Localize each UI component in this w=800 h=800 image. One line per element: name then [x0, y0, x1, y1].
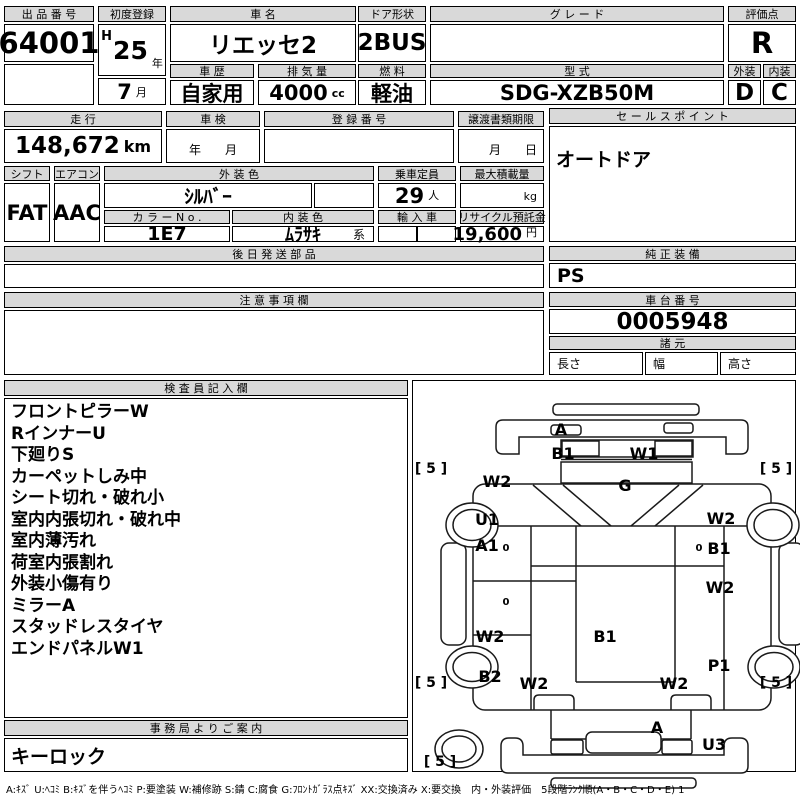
color-no-value: 1E7 [104, 226, 230, 242]
later-parts-label: 後 日 発 送 部 品 [4, 246, 544, 262]
genuine-equipment-label: 純 正 装 備 [549, 246, 796, 261]
specs-label: 諸 元 [549, 336, 796, 350]
interior-color-name: ﾑﾗｻｷ [285, 221, 321, 247]
damage-code-label: A1 [475, 538, 499, 554]
exterior-label: 外装 [728, 64, 761, 78]
damage-code-label: U3 [702, 737, 726, 753]
displacement-value: 4000 cc [258, 80, 356, 105]
score-label: 評価点 [728, 6, 796, 22]
first-registration-year: H 25 年 [98, 24, 166, 76]
exterior-color-label: 外 装 色 [104, 166, 374, 181]
damage-code-label: B1 [707, 541, 730, 557]
inspector-note-line: カーペットしみ中 [11, 467, 401, 489]
auction-number-label: 出 品 番 号 [4, 6, 94, 22]
mileage-value: 148,672 km [4, 129, 162, 163]
capacity-number: 29 [395, 184, 424, 208]
model-code-label: 型 式 [430, 64, 724, 78]
notes-label: 注 意 事 項 欄 [4, 292, 544, 308]
shift-value: FAT [4, 183, 50, 242]
spec-height: 高さ [720, 352, 796, 375]
era-letter: H [101, 29, 112, 44]
spec-length: 長さ [549, 352, 643, 375]
import-car-cell-1 [378, 226, 417, 242]
max-load-value: kg [460, 183, 544, 208]
office-notice-label: 事 務 局 よ り ご 案 内 [4, 720, 408, 736]
inspector-notes-label: 検 査 員 記 入 欄 [4, 380, 408, 396]
fuel-label: 燃 料 [358, 64, 426, 78]
first-registration-month: 7 月 [98, 78, 166, 105]
damage-code-label: B1 [593, 629, 616, 645]
damage-code-label: 0 [696, 544, 703, 554]
inspector-note-line: シート切れ・破れ小 [11, 488, 401, 510]
inspection-label: 車 検 [166, 111, 260, 127]
interior-label: 内装 [763, 64, 796, 78]
transfer-docs-label: 譲渡書類期限 [458, 111, 544, 127]
damage-code-label: B2 [478, 669, 501, 685]
grade-value [430, 24, 724, 62]
damage-code-label: [ 5 ] [760, 462, 792, 476]
recycle-number: 19,600 [453, 224, 522, 245]
first-registration-month-value: 7 [117, 80, 132, 104]
damage-code-label: W2 [660, 676, 689, 692]
damage-code-label: A [651, 720, 663, 736]
displacement-unit: cc [332, 87, 345, 100]
auction-number-value: 64001 [4, 24, 94, 62]
capacity-unit: 人 [428, 187, 439, 203]
inspector-note-line: フロントピラーW [11, 402, 401, 424]
capacity-value: 29 人 [378, 183, 456, 208]
auction-sheet: 出 品 番 号 64001 初度登録 H 25 年 7 月 車 名 リエッセ2 … [0, 0, 800, 800]
first-registration-year-value: 25 [113, 36, 148, 65]
interior-score: C [763, 80, 796, 105]
inspector-note-line: RインナーU [11, 424, 401, 446]
month-unit: 月 [136, 84, 147, 100]
inspector-notes-body: フロントピラーWRインナーU下廻りSカーペットしみ中シート切れ・破れ小室内内張切… [4, 398, 408, 718]
damage-code-label: G [618, 478, 631, 494]
vehicle-damage-diagram: AB1W1[ 5 ][ 5 ]W2GU1W2A100B10W2W2B1B2P1W… [412, 380, 796, 772]
car-name-label: 車 名 [170, 6, 356, 22]
damage-code-label: W2 [483, 474, 512, 490]
recycle-deposit-value: 19,600 円 [460, 226, 544, 242]
door-shape-label: ドア形状 [358, 6, 426, 22]
interior-color-value: ﾑﾗｻｷ 系 [232, 226, 374, 242]
spec-width: 幅 [645, 352, 718, 375]
year-unit: 年 [152, 55, 163, 71]
notes-value [4, 310, 544, 375]
grade-label: グ レ ー ド [430, 6, 724, 22]
aircon-label: エアコン [54, 166, 100, 181]
inspector-note-line: エンドパネルW1 [11, 639, 401, 661]
damage-code-label: W2 [707, 511, 736, 527]
damage-code-label: B1 [551, 446, 574, 462]
capacity-label: 乗車定員 [378, 166, 456, 181]
exterior-color-extra-cell [314, 183, 374, 208]
damage-code-label: [ 5 ] [424, 755, 456, 769]
chassis-number-label: 車 台 番 号 [549, 292, 796, 307]
inspector-note-line: スタッドレスタイヤ [11, 617, 401, 639]
history-label: 車 歴 [170, 64, 254, 78]
registration-number-value [264, 129, 454, 163]
history-value: 自家用 [170, 80, 254, 105]
displacement-label: 排 気 量 [258, 64, 356, 78]
damage-code-label: [ 5 ] [760, 676, 792, 690]
damage-code-label: W1 [630, 446, 659, 462]
recycle-unit: 円 [526, 224, 537, 240]
damage-code-label: W2 [476, 629, 505, 645]
chassis-number-value: 0005948 [549, 309, 796, 334]
later-parts-value [4, 264, 544, 288]
max-load-label: 最大積載量 [460, 166, 544, 181]
mileage-unit: km [124, 137, 151, 156]
damage-code-label: P1 [708, 658, 731, 674]
mileage-number: 148,672 [15, 133, 120, 159]
import-car-cell-2 [417, 226, 456, 242]
shift-label: シフト [4, 166, 50, 181]
max-load-unit: kg [524, 190, 537, 203]
damage-code-label: W2 [706, 580, 735, 596]
inspector-note-line: 室内内張切れ・破れ中 [11, 510, 401, 532]
genuine-equipment-value: PS [549, 263, 796, 288]
sales-point-value: オートドア [549, 126, 796, 242]
door-shape-value: 2BUS [358, 24, 426, 62]
model-code-value: SDG-XZB50M [430, 80, 724, 105]
damage-code-label: W2 [520, 676, 549, 692]
import-car-label: 輸 入 車 [378, 210, 456, 224]
inspector-note-line: 外装小傷有り [11, 574, 401, 596]
registration-number-label: 登 録 番 号 [264, 111, 454, 127]
diagram-labels-layer: AB1W1[ 5 ][ 5 ]W2GU1W2A100B10W2W2B1B2P1W… [413, 381, 795, 771]
damage-code-label: U1 [475, 512, 499, 528]
inspection-value: 年 月 [166, 129, 260, 163]
damage-code-label: 0 [503, 544, 510, 554]
first-registration-label: 初度登録 [98, 6, 166, 22]
damage-code-label: A [555, 422, 567, 438]
aircon-value: AAC [54, 183, 100, 242]
damage-code-label: [ 5 ] [415, 462, 447, 476]
exterior-score: D [728, 80, 761, 105]
color-no-label: カ ラ ー N o . [104, 210, 230, 224]
inspector-note-line: 下廻りS [11, 445, 401, 467]
transfer-docs-value: 月 日 [458, 129, 544, 163]
damage-code-label: 0 [503, 598, 510, 608]
fuel-value: 軽油 [358, 80, 426, 105]
inspector-note-line: ミラーA [11, 596, 401, 618]
inspector-note-line: 室内薄汚れ [11, 531, 401, 553]
mileage-label: 走 行 [4, 111, 162, 127]
car-name-value: リエッセ2 [170, 24, 356, 62]
damage-code-label: [ 5 ] [415, 676, 447, 690]
interior-color-suffix: 系 [353, 226, 365, 243]
displacement-number: 4000 [269, 81, 327, 105]
inspector-note-line: 荷室内張割れ [11, 553, 401, 575]
score-value: R [728, 24, 796, 62]
exterior-color-value: ｼﾙﾊﾞｰ [104, 183, 312, 208]
auction-number-extra-cell [4, 64, 94, 105]
recycle-deposit-label: リサイクル預託金 [460, 210, 544, 224]
sales-point-label: セ ー ル ス ポ イ ン ト [549, 108, 796, 124]
damage-code-legend: A:ｷｽﾞ U:ﾍｺﾐ B:ｷｽﾞを伴うﾍｺﾐ P:要塗装 W:補修跡 S:錆 … [6, 781, 685, 796]
office-notice-value: キーロック [4, 738, 408, 772]
